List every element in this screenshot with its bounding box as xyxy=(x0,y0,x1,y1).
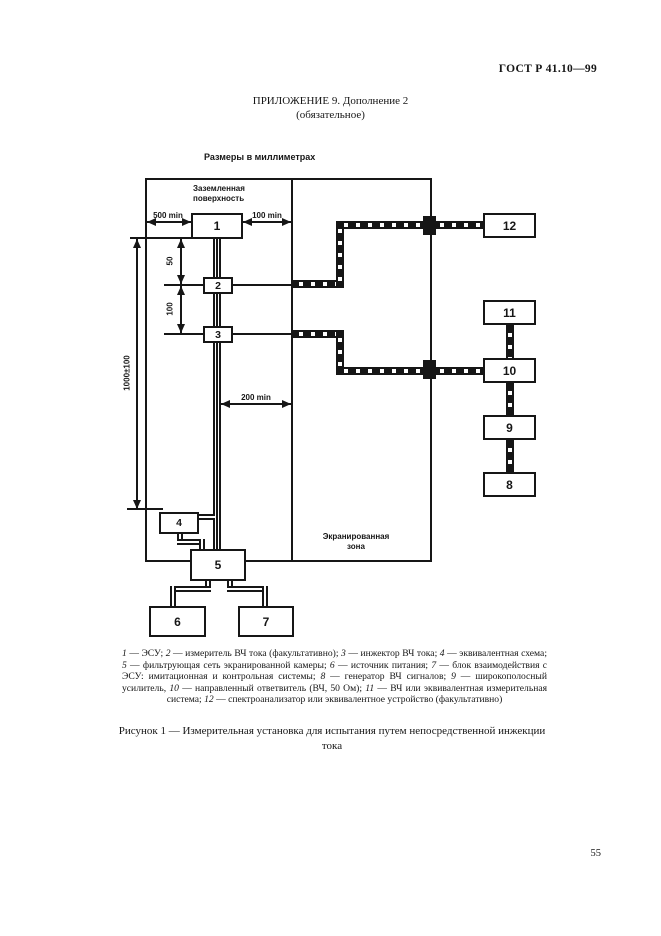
dim-line-100 xyxy=(180,286,182,333)
figure-caption: Рисунок 1 — Измерительная установка для … xyxy=(118,724,546,754)
label-grounded-surface: Заземленная поверхность xyxy=(193,184,245,204)
probe3-lead-line xyxy=(233,333,291,335)
legend-item-text: — генератор ВЧ сигналов; xyxy=(325,671,451,682)
wall-feedthrough xyxy=(423,216,436,235)
appendix-title: ПРИЛОЖЕНИЕ 9. Дополнение 2 xyxy=(0,95,661,107)
dim-label-100min: 100 min xyxy=(242,211,292,220)
box-9-broadband-amplifier: 9 xyxy=(483,415,536,440)
legend-item-num: 12 xyxy=(204,694,214,705)
label-grounded-surface-line2: поверхность xyxy=(193,194,245,204)
box-6-power-supply: 6 xyxy=(149,606,206,637)
coax-cable-10-9 xyxy=(506,383,514,415)
box-2-current-meter: 2 xyxy=(203,277,233,294)
box-7-esa-interface: 7 xyxy=(238,606,294,637)
legend-item-text: — спектроанализатор или эквивалентное ус… xyxy=(214,694,503,705)
box5-box6-link xyxy=(170,586,176,607)
box-3-current-injector: 3 xyxy=(203,326,233,343)
wall-feedthrough xyxy=(423,360,436,379)
dim-line-100min xyxy=(243,221,291,223)
gost-standard-number: ГОСТ Р 41.10—99 xyxy=(499,63,597,75)
box-4-equivalent-network: 4 xyxy=(159,512,199,534)
box-11-rf-measuring-system: 11 xyxy=(483,300,536,325)
box-8-rf-generator: 8 xyxy=(483,472,536,497)
dim-line-200min xyxy=(221,403,291,405)
dim-line-50 xyxy=(180,239,182,284)
page-number: 55 xyxy=(591,848,602,859)
dim-line-500min xyxy=(147,221,191,223)
coax-cable-top xyxy=(336,221,344,288)
zone-divider-wall xyxy=(291,178,293,562)
coax-cable-9-8 xyxy=(506,440,514,472)
label-grounded-surface-line1: Заземленная xyxy=(193,184,245,194)
label-shielded-zone-line2: зона xyxy=(312,542,400,552)
dim-label-500min: 500 min xyxy=(144,211,192,220)
label-shielded-zone: Экранированная зона xyxy=(312,532,400,552)
box-12-spectrum-analyzer: 12 xyxy=(483,213,536,238)
dim-line-1000 xyxy=(136,239,138,509)
dim-label-50: 50 xyxy=(166,257,175,266)
box5-box6-link xyxy=(170,586,211,592)
extension-line xyxy=(164,333,203,335)
label-shielded-zone-line1: Экранированная xyxy=(312,532,400,542)
legend-item-text: — эквивалентная схема; xyxy=(445,648,547,659)
coax-cable-bottom xyxy=(336,367,483,375)
box5-box7-link xyxy=(262,586,268,607)
legend-item-text: — ЭСУ; xyxy=(127,648,166,659)
box-1-esa: 1 xyxy=(191,213,243,239)
appendix-subtitle: (обязательное) xyxy=(0,109,661,121)
figure-legend: 1 — ЭСУ; 2 — измеритель ВЧ тока (факульт… xyxy=(122,648,547,706)
box-5-filter-network: 5 xyxy=(190,549,246,581)
probe2-lead-line xyxy=(233,284,291,286)
coax-cable-top xyxy=(336,221,483,229)
legend-item-text: — источник питания; xyxy=(335,660,432,671)
legend-item-text: — направленный ответвитель (ВЧ, 50 Ом); xyxy=(179,683,365,694)
coax-cable-11-10 xyxy=(506,325,514,358)
dim-label-100: 100 xyxy=(166,302,175,315)
legend-item-text: — измеритель ВЧ тока (факультативно); xyxy=(170,648,341,659)
dim-label-1000: 1000±100 xyxy=(123,355,132,391)
units-note: Размеры в миллиметрах xyxy=(204,152,315,162)
legend-item-text: — фильтрующая сеть экранированной камеры… xyxy=(127,660,330,671)
legend-item-num: 11 xyxy=(365,683,374,694)
document-page: ГОСТ Р 41.10—99 ПРИЛОЖЕНИЕ 9. Дополнение… xyxy=(0,0,661,936)
legend-item-text: — инжектор ВЧ тока; xyxy=(346,648,440,659)
box-10-directional-coupler: 10 xyxy=(483,358,536,383)
legend-item-num: 10 xyxy=(169,683,179,694)
dim-label-200min: 200 min xyxy=(221,393,291,402)
